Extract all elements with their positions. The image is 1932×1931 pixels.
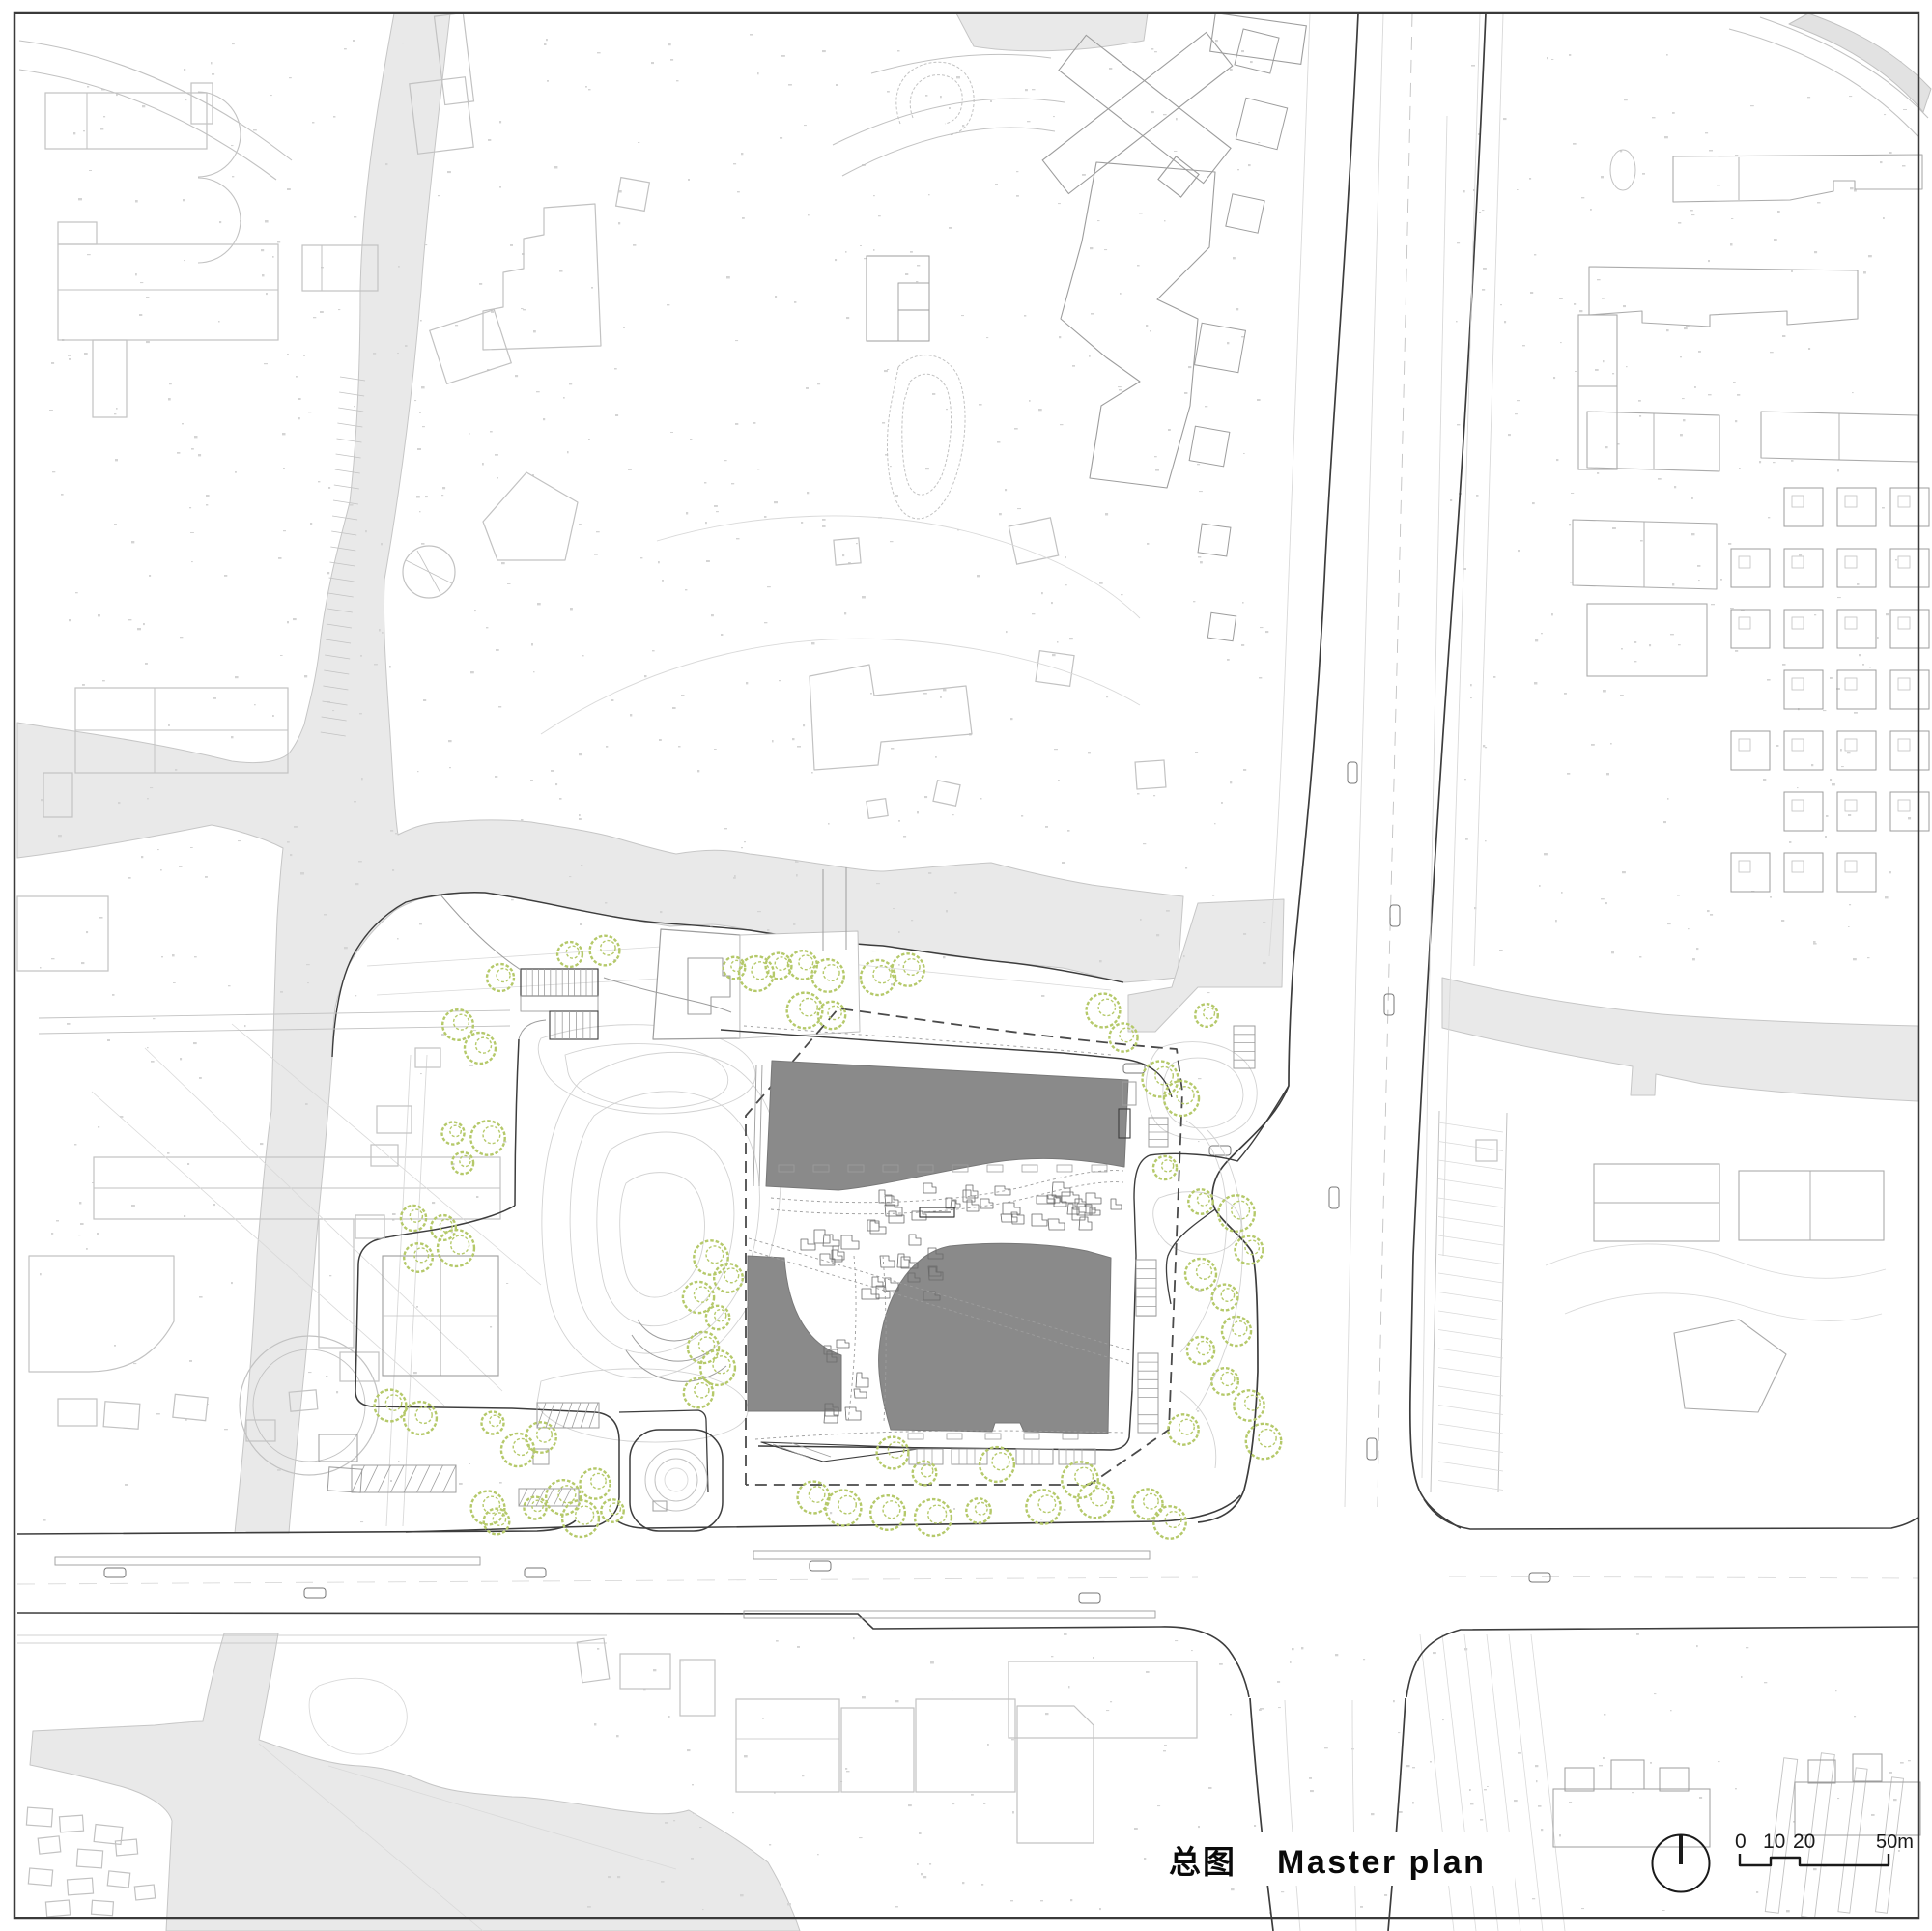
svg-text:10: 10 — [1763, 1831, 1785, 1853]
svg-text:总图: 总图 — [1169, 1844, 1236, 1880]
svg-text:0: 0 — [1735, 1831, 1747, 1853]
svg-text:20: 20 — [1793, 1831, 1815, 1853]
svg-text:50m: 50m — [1876, 1832, 1914, 1853]
svg-text:Master plan: Master plan — [1277, 1844, 1486, 1881]
